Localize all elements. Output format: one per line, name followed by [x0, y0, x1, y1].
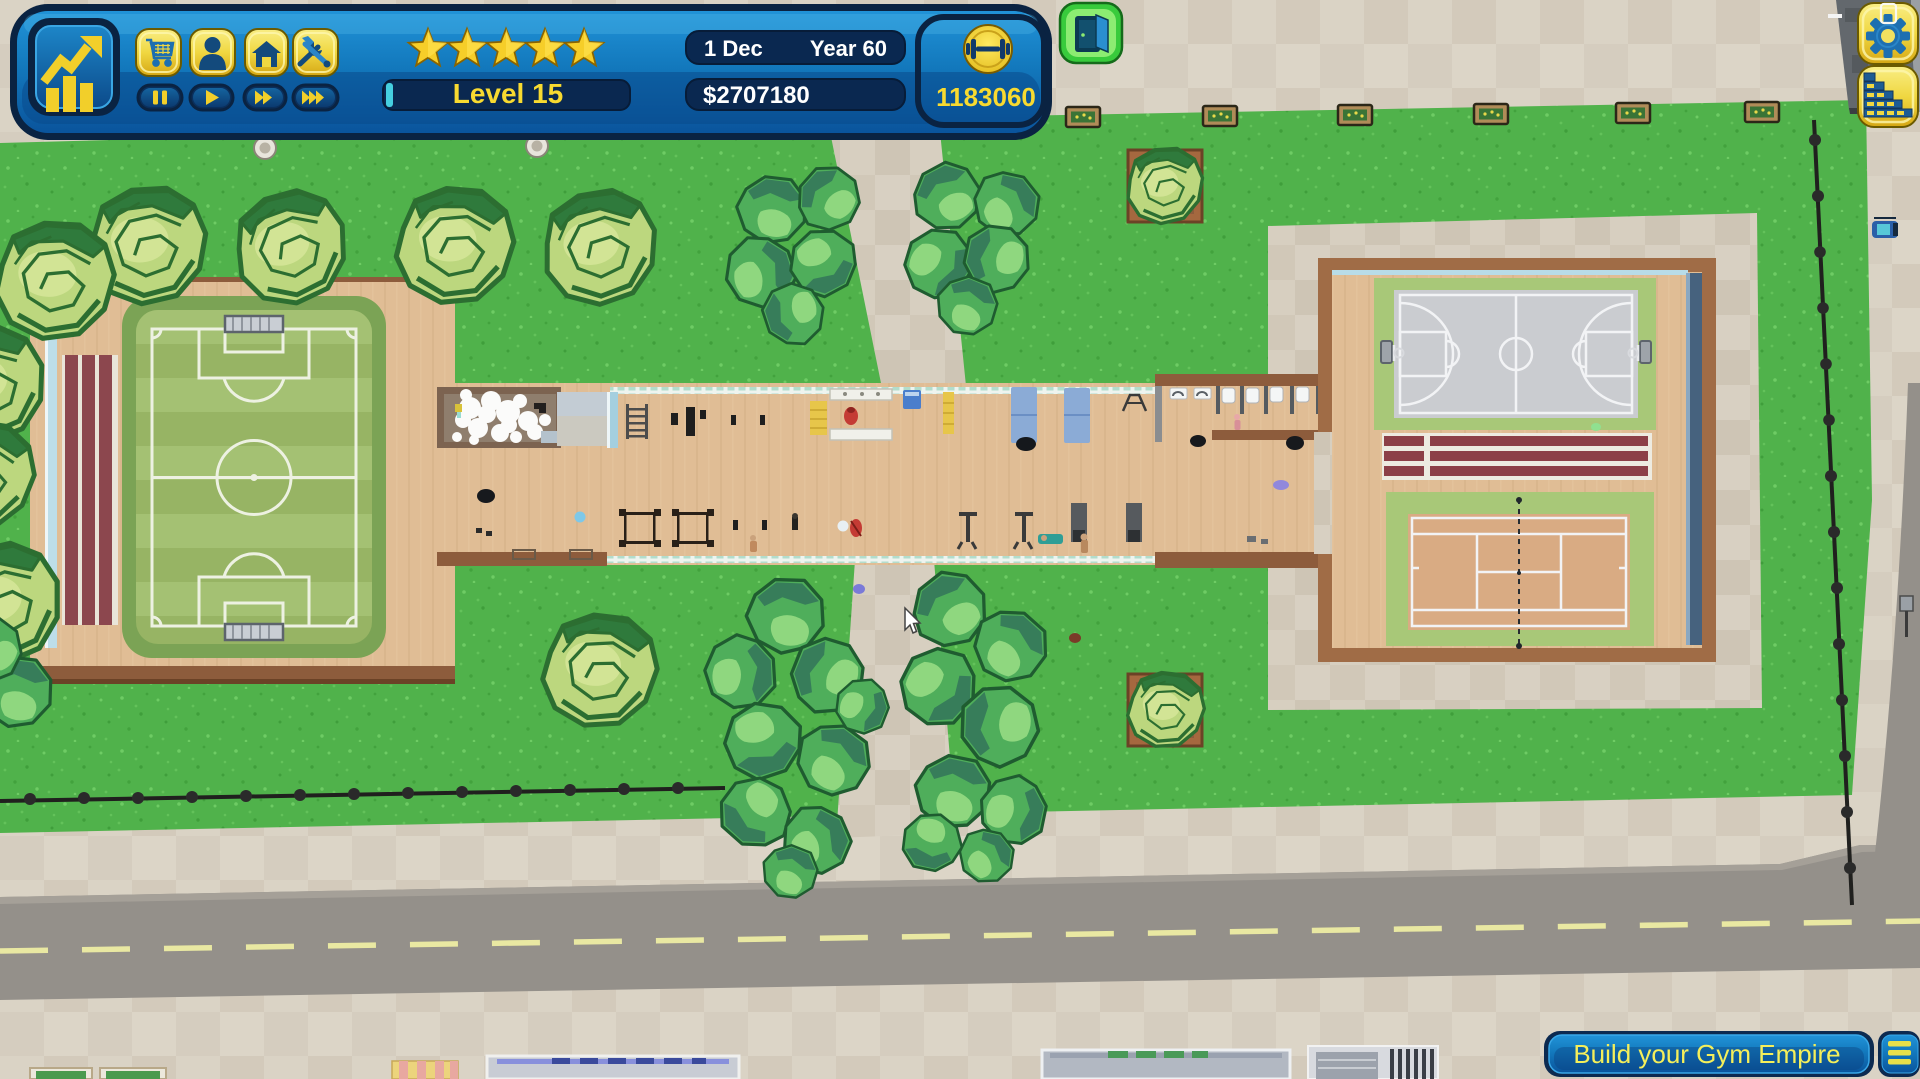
svg-text:1183060: 1183060 — [936, 82, 1036, 112]
svg-text:Year 60: Year 60 — [810, 36, 887, 61]
svg-text:1 Dec: 1 Dec — [704, 36, 763, 61]
svg-text:Level 15: Level 15 — [453, 78, 564, 109]
svg-text:Build your Gym Empire: Build your Gym Empire — [1573, 1039, 1840, 1069]
svg-text:$2707180: $2707180 — [703, 82, 810, 109]
